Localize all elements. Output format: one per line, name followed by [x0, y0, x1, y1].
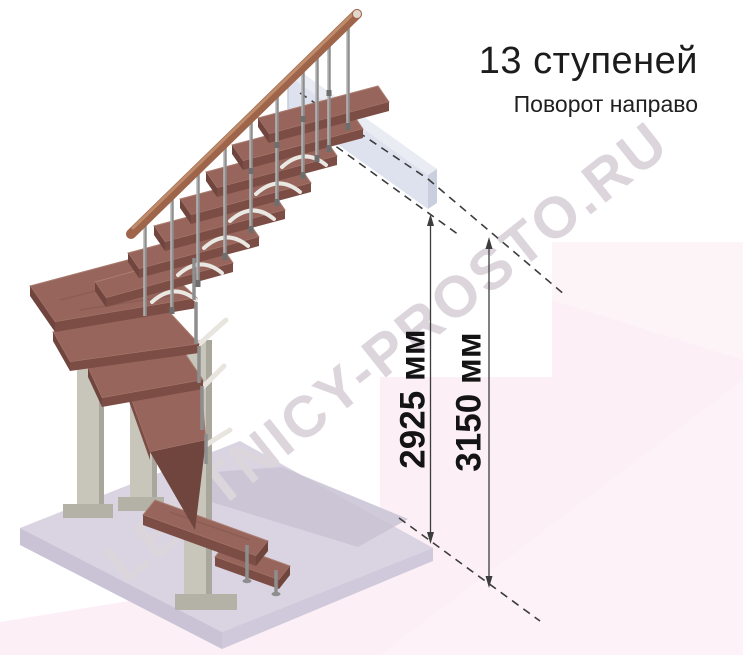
dimension-label-3150: 3150 мм	[450, 332, 489, 471]
staircase-diagram-canvas: LESTNICY-PROSTO.RU	[0, 0, 743, 655]
page-title: 13 ступеней	[479, 42, 698, 82]
page-subtitle: Поворот направо	[479, 91, 698, 118]
center-post-base	[175, 594, 237, 610]
handrail-end-cap	[353, 10, 362, 19]
left-post-base	[63, 504, 113, 518]
header-block: 13 ступеней Поворот направо	[479, 42, 698, 118]
dimension-label-2925: 2925 мм	[394, 329, 433, 468]
slab-end-cap	[428, 169, 437, 209]
